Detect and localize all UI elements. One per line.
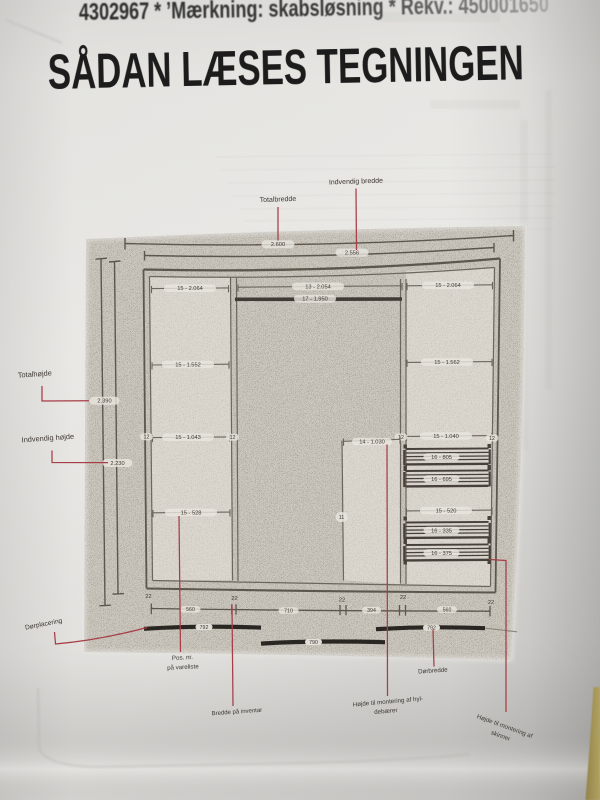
svg-text:16 - 695: 16 - 695 bbox=[431, 477, 452, 483]
svg-text:17 - 1.950: 17 - 1.950 bbox=[302, 297, 328, 303]
svg-text:12: 12 bbox=[398, 435, 404, 441]
svg-text:15 - 1.562: 15 - 1.562 bbox=[434, 360, 460, 366]
svg-text:792: 792 bbox=[427, 625, 436, 631]
svg-text:16 - 335: 16 - 335 bbox=[431, 528, 452, 534]
svg-text:16 - 375: 16 - 375 bbox=[431, 551, 452, 557]
svg-text:15 - 1.552: 15 - 1.552 bbox=[175, 362, 201, 368]
svg-text:15 - 528: 15 - 528 bbox=[181, 510, 202, 516]
svg-text:22: 22 bbox=[145, 594, 151, 600]
svg-text:22: 22 bbox=[400, 595, 406, 601]
svg-text:2.230: 2.230 bbox=[110, 461, 124, 467]
svg-text:16 - 805: 16 - 805 bbox=[431, 455, 452, 461]
svg-text:2.600: 2.600 bbox=[271, 242, 285, 248]
svg-text:13 - 2.054: 13 - 2.054 bbox=[305, 284, 331, 290]
svg-text:15 - 2.064: 15 - 2.064 bbox=[177, 286, 203, 292]
svg-text:12: 12 bbox=[144, 435, 150, 441]
svg-text:11: 11 bbox=[339, 515, 345, 521]
svg-text:394: 394 bbox=[367, 608, 376, 614]
svg-text:Pos. nr.: Pos. nr. bbox=[172, 654, 194, 662]
svg-text:15 - 1.043: 15 - 1.043 bbox=[175, 435, 201, 441]
svg-text:2.390: 2.390 bbox=[97, 399, 111, 405]
svg-text:15 - 2.064: 15 - 2.064 bbox=[435, 283, 461, 289]
svg-text:22: 22 bbox=[339, 598, 345, 604]
svg-text:Totalbredde: Totalbredde bbox=[260, 196, 297, 204]
svg-text:792: 792 bbox=[200, 625, 209, 631]
svg-text:22: 22 bbox=[488, 600, 494, 606]
svg-text:SÅDAN LÆSES TEGNINGEN: SÅDAN LÆSES TEGNINGEN bbox=[47, 36, 524, 100]
svg-text:15 - 520: 15 - 520 bbox=[436, 508, 457, 514]
svg-text:710: 710 bbox=[284, 608, 293, 614]
svg-text:2.556: 2.556 bbox=[345, 251, 359, 257]
svg-text:14 - 1.030: 14 - 1.030 bbox=[359, 440, 385, 446]
svg-text:790: 790 bbox=[309, 640, 318, 646]
svg-text:22: 22 bbox=[231, 596, 237, 602]
svg-text:560: 560 bbox=[186, 607, 195, 613]
svg-text:560: 560 bbox=[443, 607, 452, 613]
svg-text:12: 12 bbox=[230, 435, 236, 441]
svg-text:12: 12 bbox=[489, 436, 495, 442]
svg-text:15 - 1.040: 15 - 1.040 bbox=[433, 434, 459, 440]
